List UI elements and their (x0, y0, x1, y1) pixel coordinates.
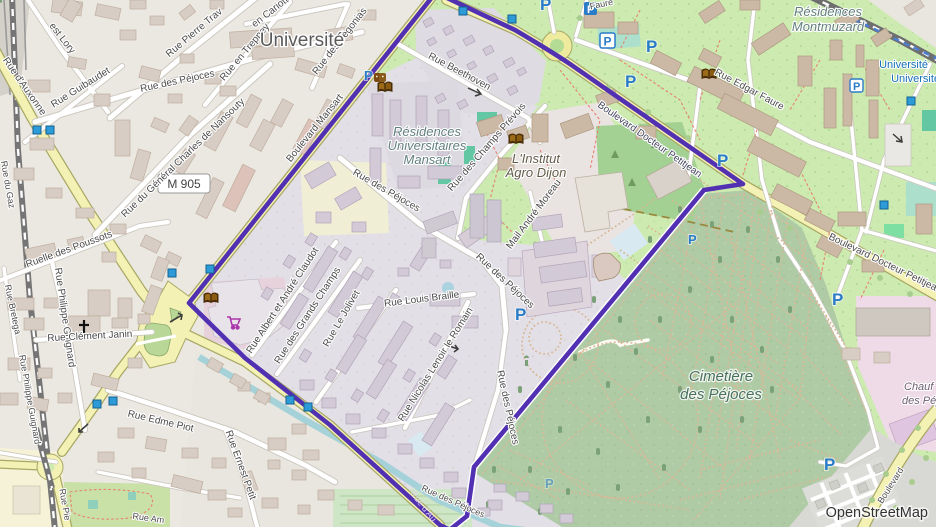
svg-text:P: P (515, 305, 526, 324)
svg-text:P: P (625, 72, 636, 91)
svg-text:P: P (824, 455, 835, 474)
svg-text:des Péj: des Péj (902, 395, 936, 407)
svg-text:Universitaires: Universitaires (388, 138, 467, 153)
svg-text:Université: Université (260, 30, 344, 51)
svg-text:P: P (717, 151, 728, 170)
svg-text:P: P (364, 68, 373, 83)
svg-text:Université: Université (879, 59, 928, 71)
svg-text:Agro Dijon: Agro Dijon (505, 165, 567, 180)
svg-text:Cimetière: Cimetière (689, 368, 753, 385)
svg-text:Résidences: Résidences (393, 124, 461, 139)
svg-text:P: P (540, 0, 551, 14)
svg-text:Résidences: Résidences (794, 4, 862, 19)
svg-text:P: P (604, 35, 612, 49)
svg-text:OpenStreetMap: OpenStreetMap (826, 505, 928, 521)
svg-text:Mansart: Mansart (404, 152, 452, 167)
svg-text:Montmuzard: Montmuzard (792, 19, 865, 34)
svg-text:des Péjoces: des Péjoces (680, 386, 762, 403)
svg-text:P: P (545, 476, 554, 491)
svg-text:Chauf: Chauf (904, 381, 934, 393)
svg-text:L'Institut: L'Institut (512, 151, 561, 166)
svg-text:P: P (688, 232, 697, 247)
svg-text:Université: Université (891, 73, 936, 85)
svg-text:P: P (853, 81, 860, 93)
svg-text:M 905: M 905 (167, 177, 201, 191)
svg-text:P: P (832, 290, 843, 309)
svg-text:P: P (646, 37, 657, 56)
